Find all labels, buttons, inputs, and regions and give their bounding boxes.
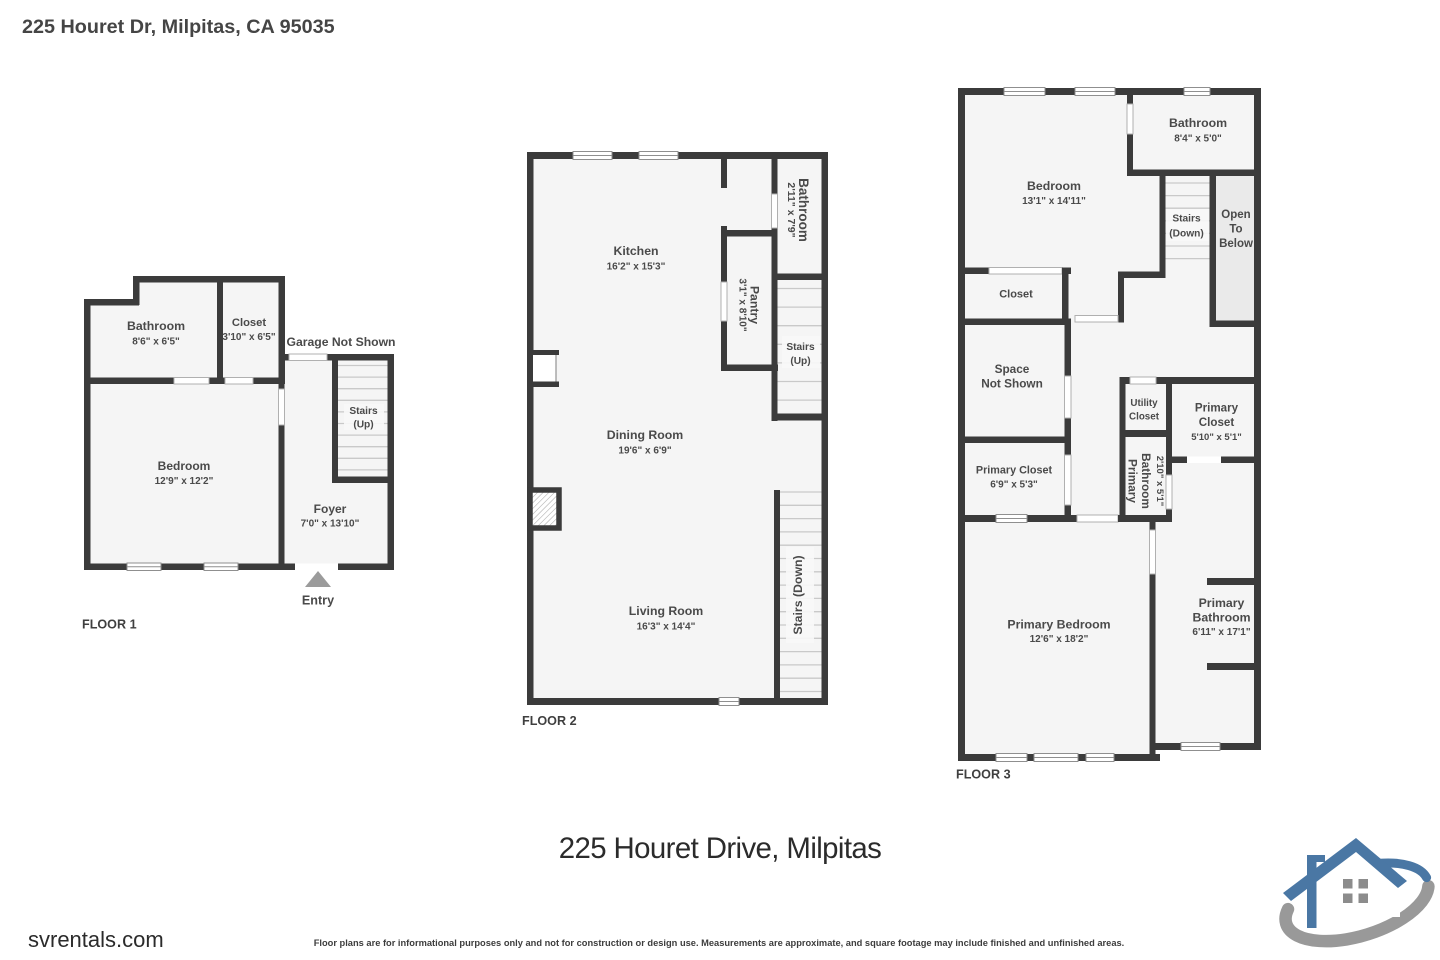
svg-text:Bathroom: Bathroom	[796, 178, 811, 242]
svg-text:Primary Closet: Primary Closet	[976, 465, 1053, 477]
svg-text:2'10" x 5'1": 2'10" x 5'1"	[1154, 456, 1165, 507]
svg-text:svrentals.com: svrentals.com	[28, 927, 164, 952]
svg-text:(Up): (Up)	[353, 420, 373, 431]
svg-text:Bathroom: Bathroom	[1139, 453, 1153, 509]
svg-text:225 Houret Drive, Milpitas: 225 Houret Drive, Milpitas	[559, 832, 882, 865]
svg-text:Dining Room: Dining Room	[607, 428, 684, 442]
svg-text:16'2" x 15'3": 16'2" x 15'3"	[607, 262, 666, 273]
svg-text:Primary: Primary	[1199, 596, 1245, 610]
svg-text:Stairs: Stairs	[349, 406, 378, 417]
svg-text:Garage Not Shown: Garage Not Shown	[286, 335, 395, 349]
svg-text:Utility: Utility	[1130, 398, 1158, 409]
svg-text:Primary: Primary	[1195, 402, 1239, 415]
svg-text:Stairs: Stairs	[1172, 214, 1201, 225]
svg-text:Below: Below	[1219, 238, 1253, 250]
svg-text:Space: Space	[995, 362, 1030, 376]
svg-text:FLOOR 3: FLOOR 3	[956, 768, 1011, 782]
svg-text:225 Houret Dr, Milpitas, CA 95: 225 Houret Dr, Milpitas, CA 95035	[22, 16, 335, 38]
svg-text:3'10" x 6'5": 3'10" x 6'5"	[222, 332, 275, 343]
svg-text:8'4" x 5'0": 8'4" x 5'0"	[1174, 134, 1222, 145]
svg-text:6'11" x 17'1": 6'11" x 17'1"	[1192, 627, 1250, 638]
svg-text:FLOOR 1: FLOOR 1	[82, 618, 137, 632]
svg-text:Bedroom: Bedroom	[158, 459, 211, 473]
svg-text:Bathroom: Bathroom	[1169, 116, 1227, 130]
svg-text:Kitchen: Kitchen	[613, 244, 658, 258]
svg-text:7'0" x 13'10": 7'0" x 13'10"	[301, 519, 360, 530]
svg-text:12'6" x 18'2": 12'6" x 18'2"	[1030, 634, 1089, 645]
svg-text:19'6" x 6'9": 19'6" x 6'9"	[618, 446, 671, 457]
svg-text:Stairs (Down): Stairs (Down)	[791, 555, 805, 634]
svg-text:6'9" x 5'3": 6'9" x 5'3"	[990, 480, 1038, 491]
svg-text:5'10" x 5'1": 5'10" x 5'1"	[1191, 432, 1242, 443]
svg-text:Bathroom: Bathroom	[1192, 611, 1250, 625]
svg-text:12'9" x 12'2": 12'9" x 12'2"	[155, 476, 214, 487]
svg-text:Floor plans are for informatio: Floor plans are for informational purpos…	[314, 938, 1125, 948]
svg-text:Pantry: Pantry	[748, 286, 762, 324]
svg-text:Closet: Closet	[1129, 412, 1160, 423]
svg-text:Closet: Closet	[232, 317, 266, 329]
svg-text:Bedroom: Bedroom	[1027, 179, 1081, 193]
svg-text:Living Room: Living Room	[629, 604, 704, 618]
svg-text:Stairs: Stairs	[786, 342, 815, 353]
svg-text:To: To	[1229, 224, 1242, 236]
svg-text:Foyer: Foyer	[314, 502, 347, 516]
svg-text:13'1" x 14'11": 13'1" x 14'11"	[1022, 196, 1086, 207]
svg-text:(Down): (Down)	[1169, 229, 1204, 240]
svg-text:16'3" x 14'4": 16'3" x 14'4"	[637, 622, 696, 633]
svg-text:Entry: Entry	[302, 594, 334, 608]
svg-text:Closet: Closet	[1199, 416, 1235, 429]
svg-text:(Up): (Up)	[790, 356, 810, 367]
svg-text:Open: Open	[1221, 209, 1250, 221]
svg-text:2'11" x 7'9": 2'11" x 7'9"	[785, 182, 797, 237]
svg-text:FLOOR 2: FLOOR 2	[522, 714, 577, 728]
svg-text:Closet: Closet	[999, 289, 1033, 301]
svg-text:Bathroom: Bathroom	[127, 319, 185, 333]
svg-text:Primary Bedroom: Primary Bedroom	[1007, 618, 1110, 632]
svg-text:3'1" x 8'10": 3'1" x 8'10"	[737, 278, 748, 331]
svg-text:Primary: Primary	[1126, 459, 1140, 503]
svg-text:Not Shown: Not Shown	[981, 377, 1043, 391]
svg-text:8'6" x 6'5": 8'6" x 6'5"	[132, 337, 180, 348]
